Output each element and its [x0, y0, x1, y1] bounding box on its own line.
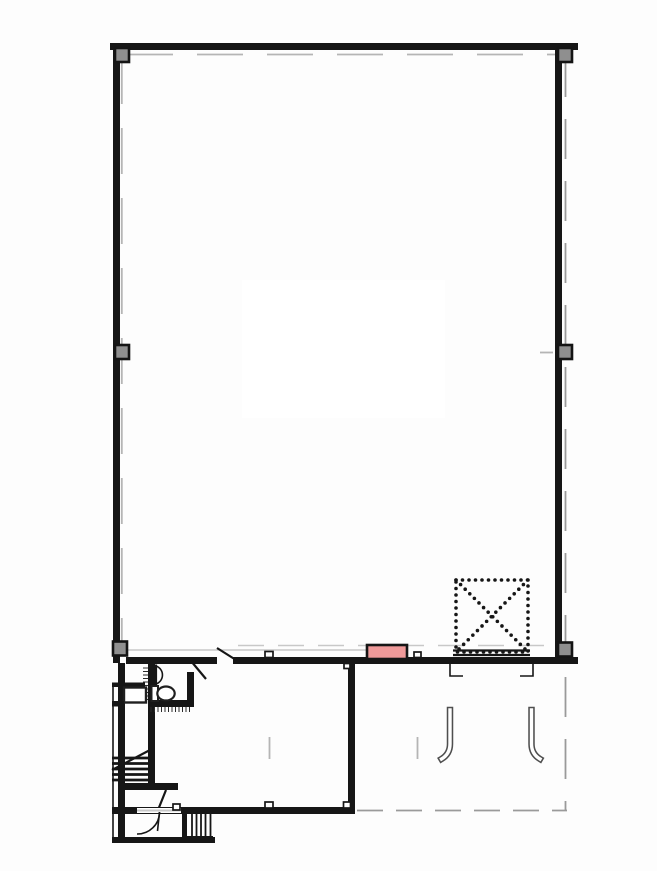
column-marker-top-right [558, 48, 572, 62]
floor-plan [0, 0, 657, 871]
wall-bump-bottom-1 [265, 652, 273, 658]
wall-bump-lower-3 [344, 664, 350, 669]
pink-door-marker [367, 645, 407, 659]
column-marker-bottom-right [558, 643, 572, 657]
wall-restroom-left [148, 663, 155, 790]
sink-basin [124, 688, 146, 703]
jamb-bracket-right [520, 663, 533, 676]
wall-stair-bottom [122, 783, 178, 790]
wall-stub-left [112, 701, 124, 707]
roof-opening-dashed-box [453, 580, 530, 655]
exterior-steps-bottom [182, 836, 213, 842]
wall-right-lower-block [348, 663, 355, 814]
wall-bump-bottom-2 [414, 652, 421, 658]
watermark-patch [242, 280, 445, 418]
floor-plan-drawing [0, 0, 657, 871]
wall-bump-lower-1 [265, 802, 273, 808]
column-marker-top-left [115, 48, 129, 62]
wall-bump-lower-2 [344, 802, 351, 808]
column-marker-mid-right [558, 345, 572, 359]
toilet-bowl [157, 687, 174, 701]
jamb-bracket-left [450, 663, 463, 676]
column-marker-bottom-left [113, 642, 127, 656]
wall-bump-entrance [173, 804, 180, 810]
hatch-restroom-bottom [151, 707, 190, 712]
exterior-step-lines [192, 813, 211, 837]
column-marker-mid-left [115, 345, 129, 359]
stair-break-line [112, 750, 150, 770]
entrance-door-swing-arc [137, 812, 160, 834]
wall-bottom-left-segment [126, 657, 217, 664]
wall-top [110, 43, 578, 50]
